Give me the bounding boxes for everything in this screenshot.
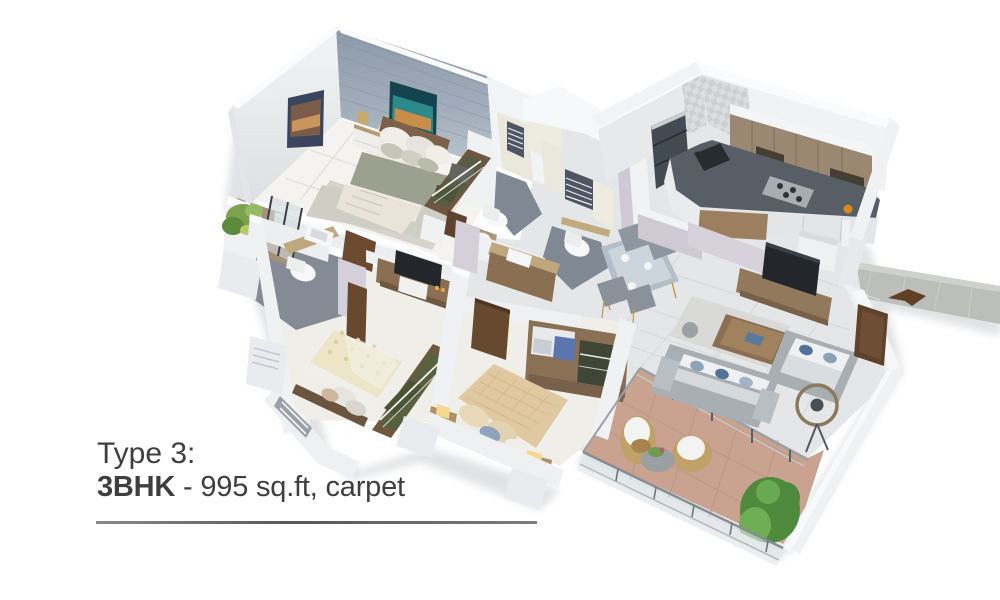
svg-text:3BHK - 995 sq.ft, carpet: 3BHK - 995 sq.ft, carpet <box>97 471 405 503</box>
svg-text:Type 3:: Type 3: <box>97 437 195 470</box>
